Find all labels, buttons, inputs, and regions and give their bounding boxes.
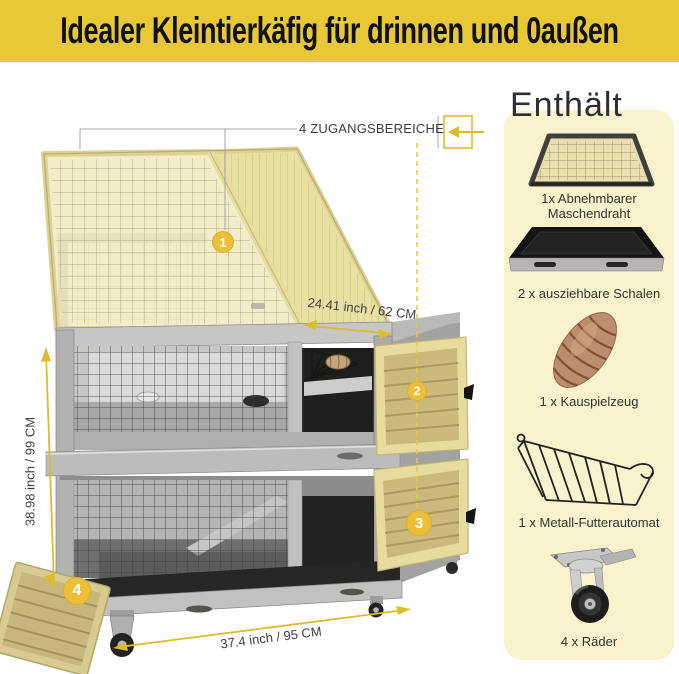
tray-handle xyxy=(340,589,364,595)
access-marker-3: 3 xyxy=(406,510,432,536)
access-marker-4: 4 xyxy=(63,577,91,605)
lower-mesh xyxy=(74,480,288,578)
includes-heading: Enthält xyxy=(510,86,623,125)
item-caption-mesh-screen: 1x Abnehmbarer xyxy=(504,191,674,206)
height-dimension-label: 38.98 inch / 99 CM xyxy=(23,392,38,552)
caster-front-left xyxy=(110,610,134,657)
brand-mark xyxy=(251,303,265,309)
upper-mesh xyxy=(74,346,288,432)
access-areas-label: 4 ZUGANGSBEREICHE xyxy=(299,121,444,136)
tray-handle xyxy=(186,606,212,613)
tray-handle xyxy=(337,453,363,460)
pullout-tray-image xyxy=(509,227,664,271)
item-caption-casters: 4 x Räder xyxy=(504,634,674,649)
mesh-screen-image xyxy=(530,136,654,184)
item-caption-chew-toy: 1 x Kauspielzeug xyxy=(504,394,674,409)
item-caption-pullout-trays: 2 x ausziehbare Schalen xyxy=(504,286,674,301)
item-caption-metal-feeder: 1 x Metall-Futterautomat xyxy=(504,515,674,530)
item-caption-mesh-screen-line2: Maschendraht xyxy=(504,206,674,221)
access-marker-2: 2 xyxy=(407,381,427,401)
access-marker-1: 1 xyxy=(212,231,234,253)
access-arrow-icon xyxy=(444,116,484,148)
